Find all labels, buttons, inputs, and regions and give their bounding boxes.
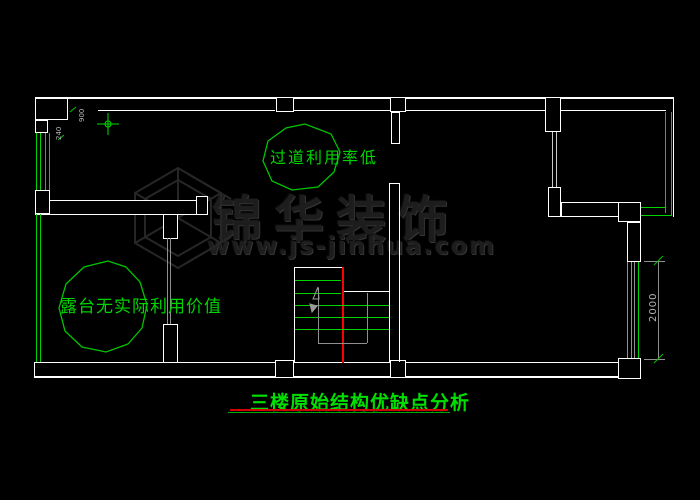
stair-direction-arrow xyxy=(310,287,319,312)
corridor-note-text: 过道利用率低 xyxy=(270,144,378,168)
terrace-note-text: 露台无实际利用价值 xyxy=(60,292,222,317)
dimension-label-2000: 2000 xyxy=(648,293,659,322)
title-underline-green xyxy=(228,412,450,413)
floorplan-canvas: 锦华装饰 www.js-jinhua.com xyxy=(0,0,700,500)
dimension-label-small: 900 xyxy=(78,109,86,122)
title-underline-red xyxy=(230,409,448,411)
crosshair-icon xyxy=(97,113,119,135)
dimension-label-small: 240 xyxy=(55,127,63,140)
annotation-overlay xyxy=(0,0,700,500)
